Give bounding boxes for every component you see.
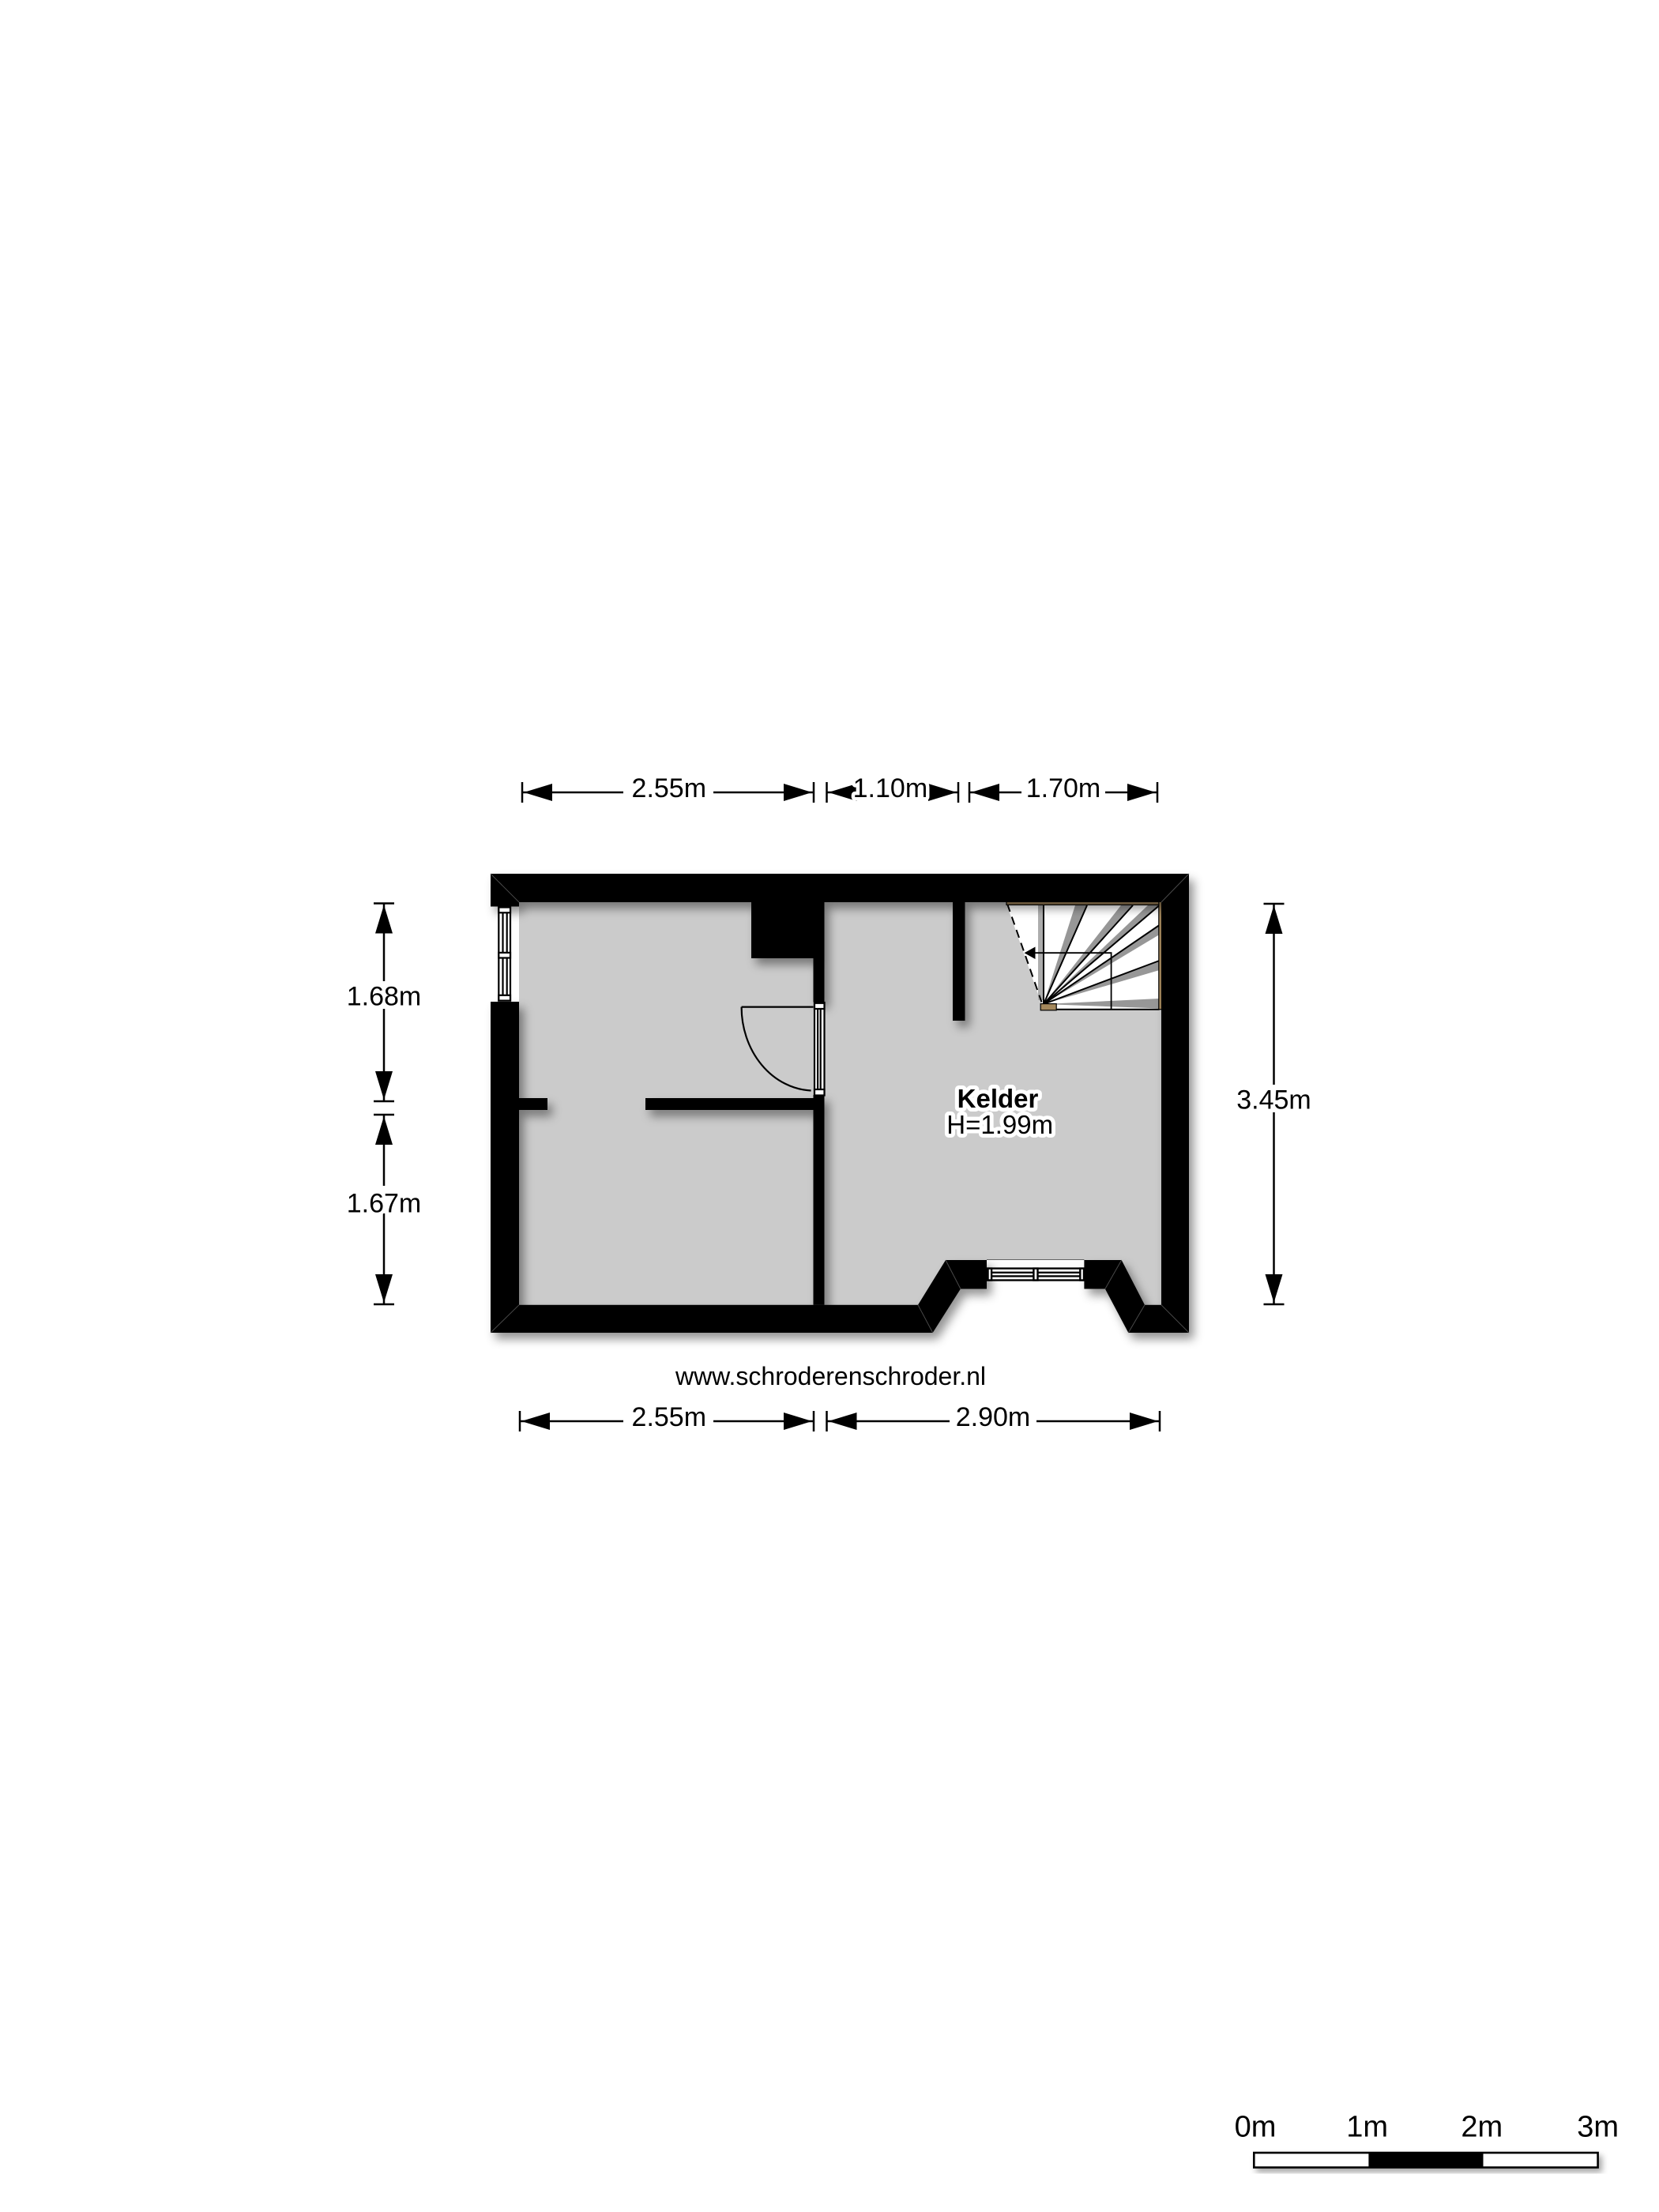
- svg-text:Kelder: Kelder: [957, 1084, 1039, 1113]
- svg-text:3m: 3m: [1577, 2111, 1619, 2144]
- svg-text:1.10m: 1.10m: [853, 773, 928, 803]
- svg-text:2.55m: 2.55m: [632, 1402, 707, 1432]
- svg-text:1m: 1m: [1346, 2111, 1388, 2144]
- svg-text:1.70m: 1.70m: [1026, 773, 1101, 803]
- svg-text:0m: 0m: [1235, 2111, 1277, 2144]
- svg-text:2m: 2m: [1461, 2111, 1503, 2144]
- svg-text:2.55m: 2.55m: [632, 773, 707, 803]
- svg-text:www.schroderenschroder.nl: www.schroderenschroder.nl: [675, 1362, 986, 1390]
- svg-text:1.68m: 1.68m: [347, 982, 422, 1012]
- svg-text:2.90m: 2.90m: [956, 1402, 1031, 1432]
- svg-text:3.45m: 3.45m: [1236, 1085, 1311, 1115]
- svg-text:H=1.99m: H=1.99m: [946, 1110, 1053, 1139]
- svg-text:1.67m: 1.67m: [347, 1189, 422, 1219]
